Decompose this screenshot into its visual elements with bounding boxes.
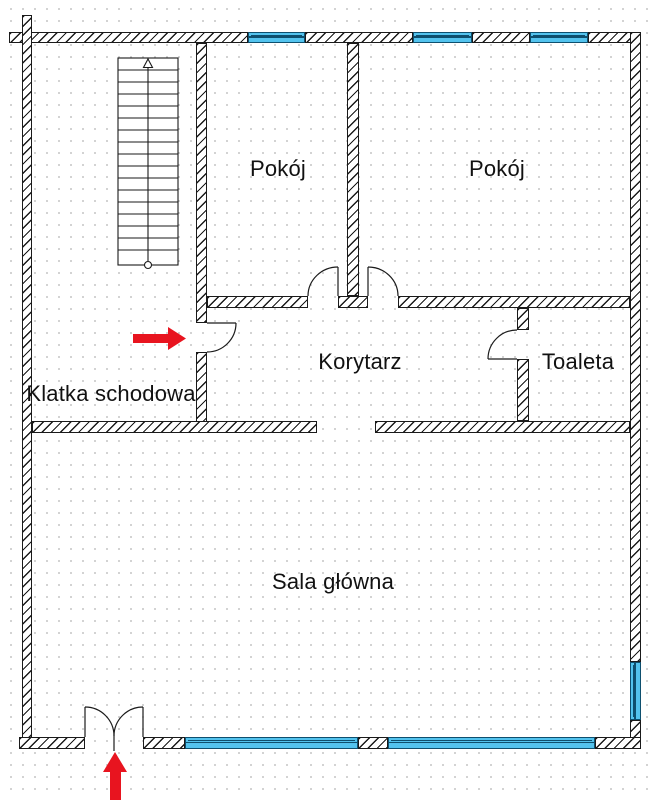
- main-entrance-arrow-icon: [103, 752, 127, 800]
- room-label-sala: Sala główna: [272, 569, 394, 595]
- room-label-korytarz: Korytarz: [318, 349, 402, 375]
- door-pokoj-left: [308, 267, 338, 296]
- room-label-toaleta: Toaleta: [542, 349, 614, 375]
- door-klatka-schodowa: [207, 323, 236, 352]
- door-toaleta: [488, 330, 517, 359]
- side-entrance-arrow-icon: [133, 327, 186, 350]
- room-label-pokoj-right: Pokój: [469, 156, 525, 182]
- door-main-entrance-double: [85, 707, 143, 751]
- door-pokoj-right: [368, 267, 398, 296]
- room-label-pokoj-left: Pokój: [250, 156, 306, 182]
- floor-plan-canvas[interactable]: Pokój Pokój Korytarz Toaleta Klatka scho…: [0, 0, 656, 800]
- room-label-klatka: Klatka schodowa: [26, 381, 195, 407]
- stairs-icon: [118, 58, 178, 269]
